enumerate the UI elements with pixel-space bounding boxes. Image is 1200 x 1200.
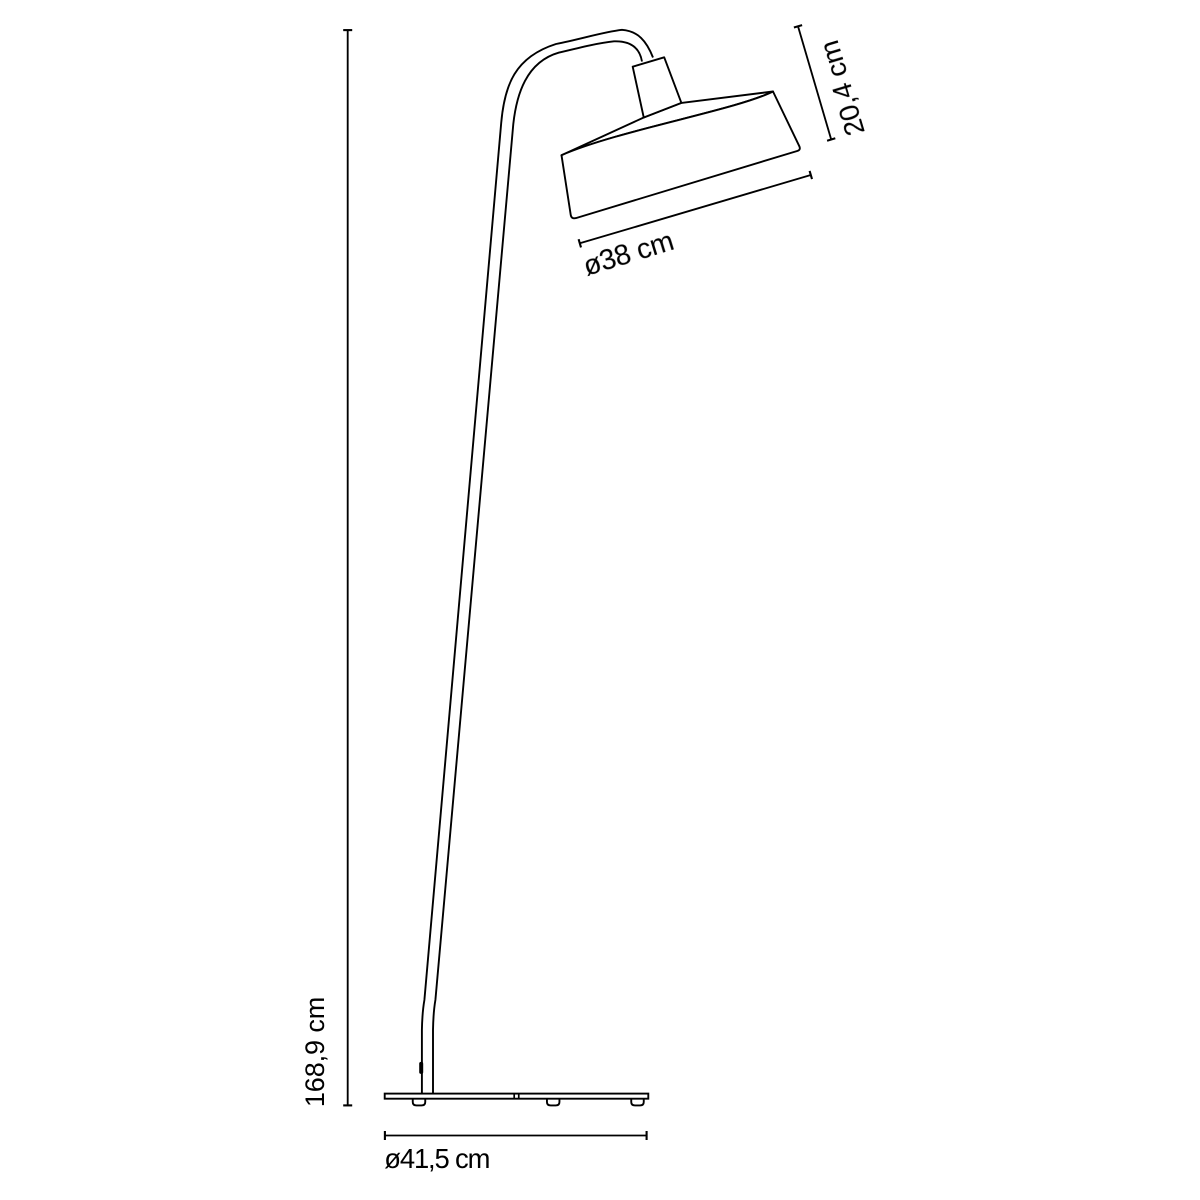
svg-text:168,9 cm: 168,9 cm [300,997,330,1107]
svg-text:ø41,5 cm: ø41,5 cm [384,1143,489,1174]
